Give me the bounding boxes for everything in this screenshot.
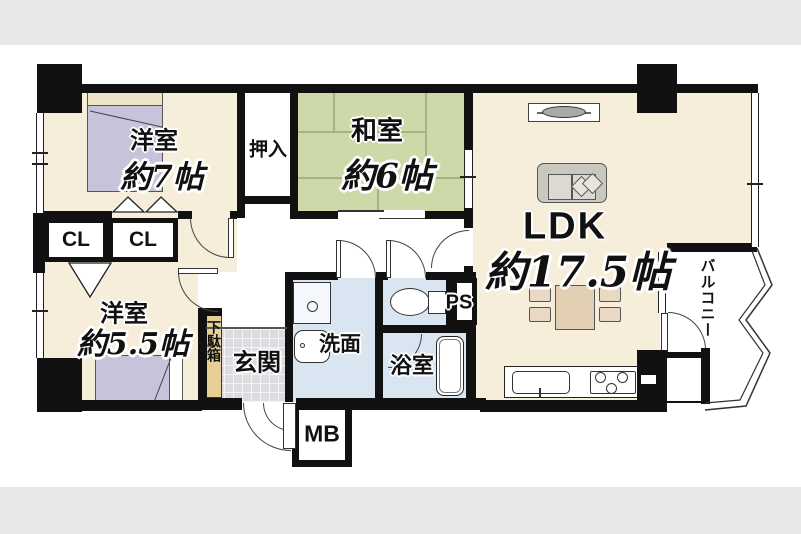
door-leaf [386,240,391,278]
window-tick [32,163,48,165]
window-tick [32,152,48,154]
balcony-outline [653,240,801,420]
wall [480,400,647,412]
label-washroom: 洗面 [319,328,361,358]
tv-icon [542,106,586,118]
wall [237,196,297,204]
pillar [37,64,82,113]
faucet-icon [539,388,541,398]
wall [290,93,298,218]
size-japanese-room: 約6帖 [341,149,433,198]
wall [285,278,293,402]
label-genkan: 玄関 [233,343,281,378]
wall [375,278,383,402]
door-leaf [336,240,341,278]
label-oshiire: 押入 [249,135,287,162]
burner-icon [617,372,628,383]
chair [529,307,551,322]
size-west-bedroom-55: 約5.5帖 [77,319,189,363]
size-west-bedroom-7: 約7帖 [120,152,204,197]
label-meter-box: MB [304,421,340,448]
pillar [37,358,82,412]
label-pipe-space: PS [446,292,473,315]
wall [464,93,473,150]
burner-icon [606,383,617,394]
tatami-line [333,93,335,131]
label-japanese-room: 和室 [351,111,403,148]
window [36,273,44,358]
entrance-door-leaf [283,403,296,449]
room-ldk-upper [473,93,752,248]
sliding-door [464,150,473,208]
label-closet-left: CL [62,228,90,252]
wall [77,400,202,411]
pillar [637,64,677,113]
kitchen-sink [512,371,570,394]
wall [290,211,338,219]
bathtub [436,336,464,396]
tv-board [528,103,600,122]
door-leaf [228,218,234,258]
wall [375,325,475,333]
label-bathroom: 浴室 [390,348,434,380]
label-closet-right: CL [129,228,157,252]
window-tick [32,310,48,312]
wall [464,208,473,228]
size-ldk: 約17.5帖 [485,239,671,300]
washing-machine [293,282,331,324]
toilet [390,288,430,316]
window [751,93,759,247]
label-balcony: バルコニー [697,258,718,338]
burner-icon [595,372,606,383]
folding-door-icon [145,196,178,213]
wall [200,398,242,410]
toilet-tank [428,291,446,314]
chair [599,307,621,322]
sliding-door [338,210,425,219]
door-leaf [178,268,218,274]
label-west-bedroom-7: 洋室 [130,121,178,156]
label-getabako: 下駄箱 [204,320,224,362]
window-tick [747,183,763,185]
sofa [537,163,607,203]
floor-plan: 洋室 約7帖 和室 約6帖 LDK 約17.5帖 洋室 約5.5帖 CL CL … [0,0,801,534]
folding-door-icon [112,196,145,213]
window-tick [460,176,476,178]
